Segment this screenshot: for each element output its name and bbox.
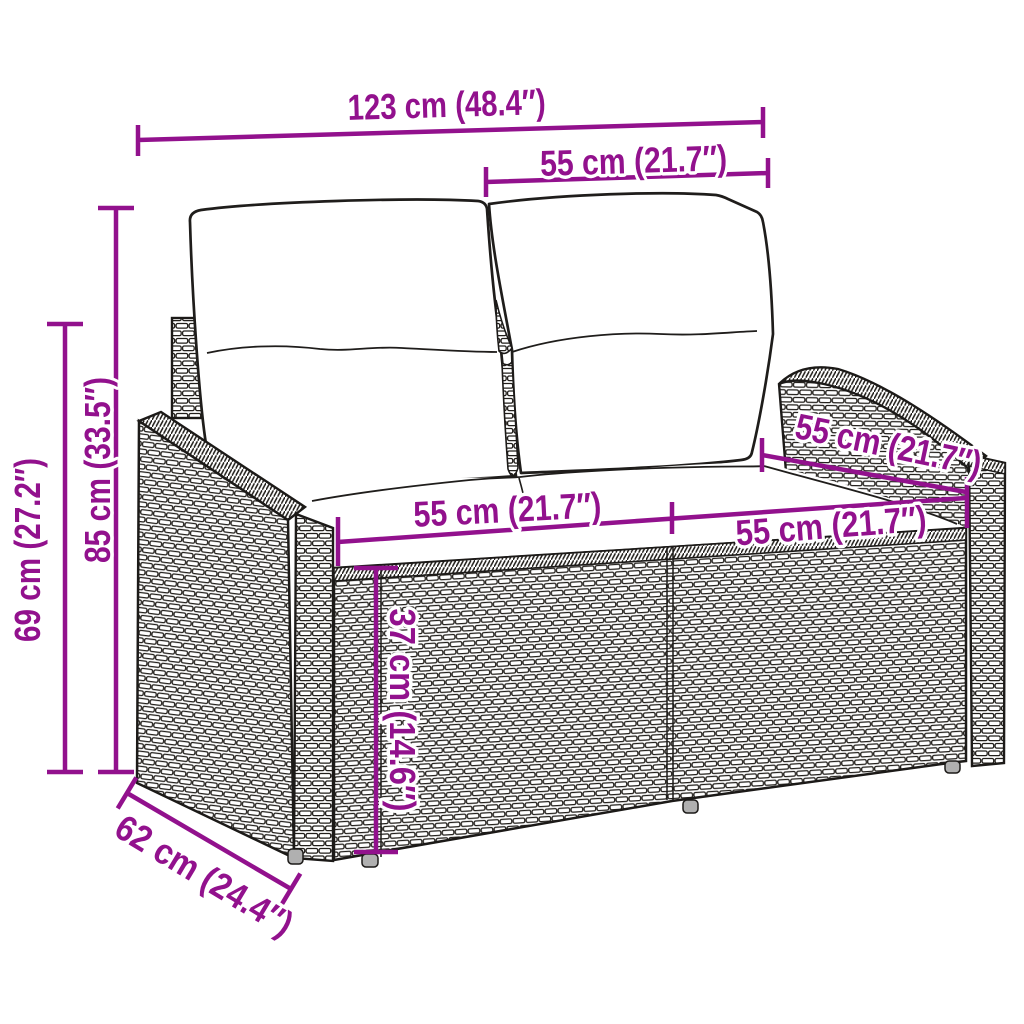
svg-text:69 cm (27.2″): 69 cm (27.2″)	[7, 458, 48, 642]
svg-text:85 cm (33.5″): 85 cm (33.5″)	[77, 377, 118, 563]
svg-text:37 cm (14.6″): 37 cm (14.6″)	[382, 609, 423, 812]
svg-text:123 cm (48.4″): 123 cm (48.4″)	[347, 81, 546, 128]
svg-text:55 cm (21.7″): 55 cm (21.7″)	[540, 137, 728, 184]
